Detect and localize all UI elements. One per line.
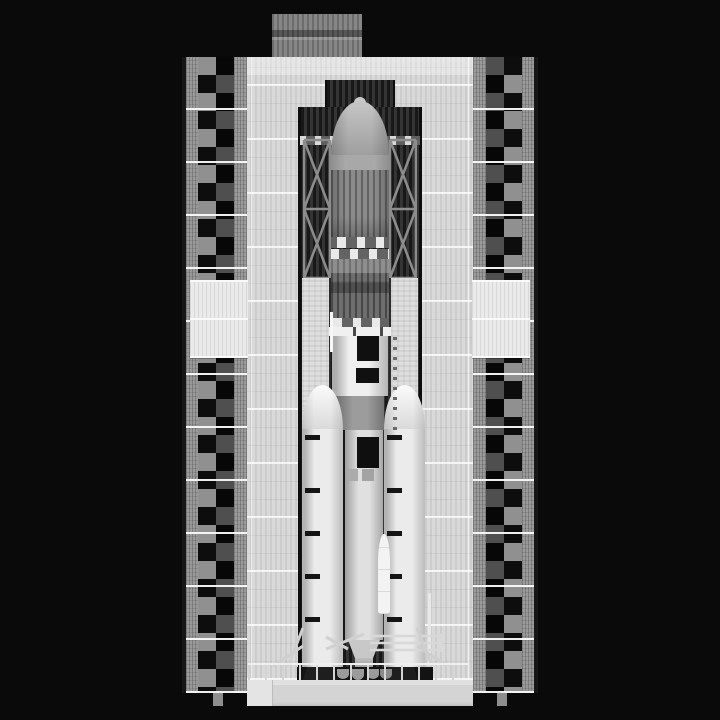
roof-house-band bbox=[272, 30, 362, 37]
booster-marking bbox=[305, 488, 320, 493]
booster-right bbox=[384, 427, 425, 668]
column-outer-edge bbox=[534, 57, 538, 693]
fairing-mid-section bbox=[331, 170, 389, 237]
column-checker-pattern bbox=[198, 57, 234, 693]
facade-seam-right bbox=[468, 57, 469, 680]
fairing-marking-row bbox=[331, 318, 389, 327]
booster-marking bbox=[305, 617, 320, 622]
side-wing-left bbox=[190, 280, 248, 358]
column-foot-right bbox=[497, 693, 507, 706]
booster-marking bbox=[305, 531, 320, 536]
booster-marking bbox=[387, 617, 402, 622]
tower-column-left bbox=[182, 57, 247, 693]
vertical-pipe bbox=[428, 593, 431, 665]
fairing-upper-section bbox=[331, 155, 389, 170]
booster-marking bbox=[387, 531, 402, 536]
core-stage-tab bbox=[362, 469, 374, 481]
column-checker-pattern bbox=[486, 57, 522, 693]
pillar-ladder-dots bbox=[393, 332, 397, 430]
booster-marking bbox=[387, 435, 402, 440]
service-cable bbox=[330, 312, 333, 352]
stage-top-ring bbox=[329, 327, 391, 336]
core-stage-panel bbox=[357, 437, 379, 468]
upper-stage-panel bbox=[356, 368, 379, 383]
side-wing-right bbox=[472, 280, 530, 358]
booster-marking bbox=[305, 574, 320, 579]
launch-platform-slab bbox=[247, 680, 473, 706]
booster-left bbox=[302, 427, 343, 668]
booster-marking bbox=[305, 435, 320, 440]
fairing-marking-row bbox=[331, 249, 389, 259]
column-rail-strip bbox=[234, 57, 247, 693]
facade-seam-left bbox=[251, 57, 252, 680]
fairing-marking-row bbox=[331, 237, 389, 248]
column-rail-strip bbox=[473, 57, 486, 693]
upper-stage-panel bbox=[357, 336, 379, 361]
roof-house-band-highlight bbox=[272, 37, 362, 40]
fairing-lower-section bbox=[331, 259, 389, 318]
interstage-ring bbox=[336, 396, 384, 430]
booster-marking bbox=[387, 488, 402, 493]
column-foot-left bbox=[213, 693, 223, 706]
core-stage-tab bbox=[348, 469, 358, 481]
service-pod bbox=[378, 534, 390, 614]
launch-platform-slab-left-block bbox=[247, 680, 273, 706]
tower-column-right bbox=[473, 57, 538, 693]
launch-gantry-scene bbox=[0, 0, 720, 720]
